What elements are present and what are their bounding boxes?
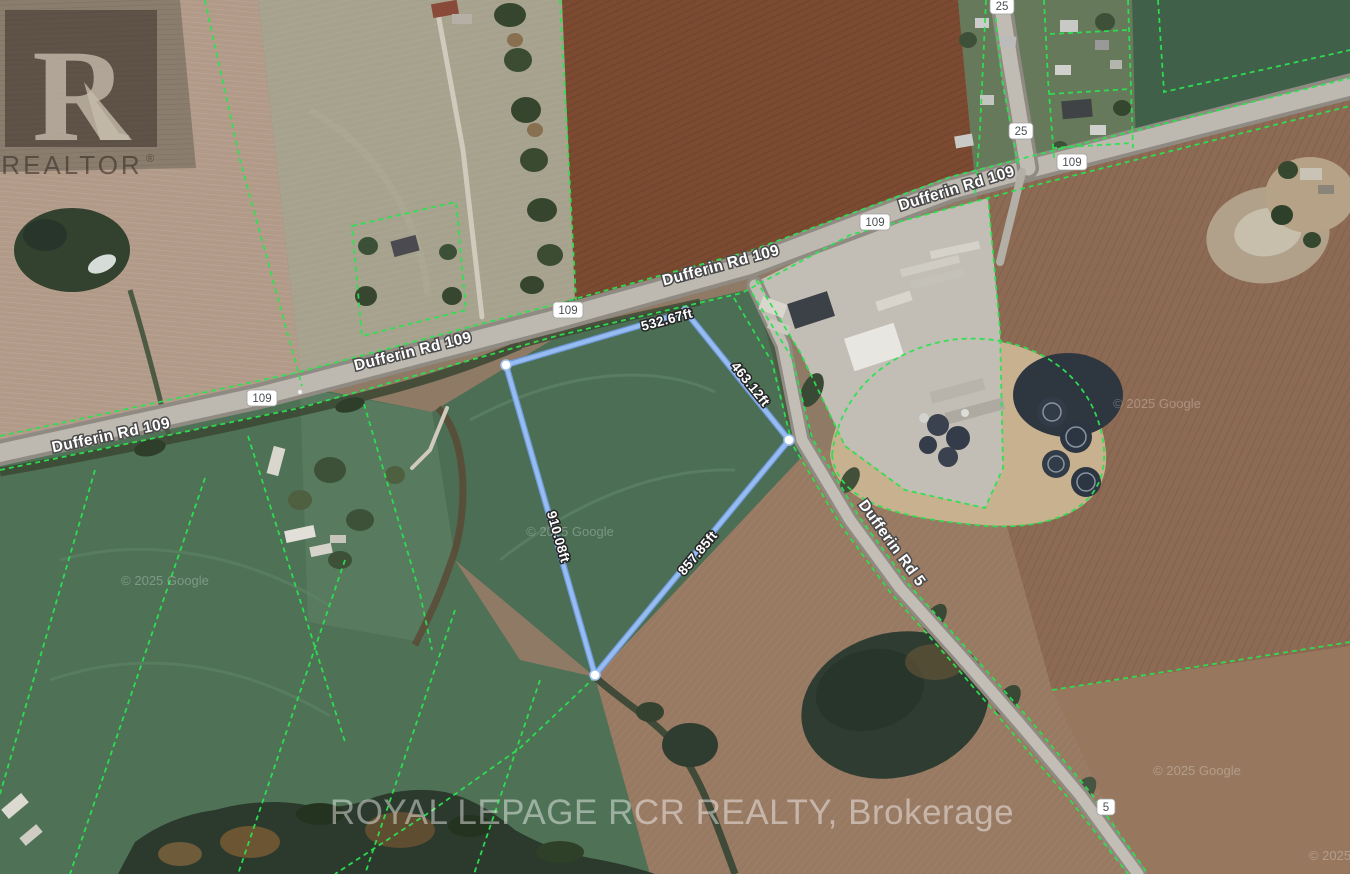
route-shield-109-a: 109 [247,390,277,406]
imagery-credit-4: © 2025 Google [1153,763,1241,778]
route-shield-109-c: 109 [860,214,890,230]
route-shield-109-d: 109 [1057,154,1087,170]
route-shield-109-b: 109 [553,302,583,318]
route-shield-25-mid: 25 [1009,123,1033,139]
parcel-vertex-east [784,435,794,445]
farm-shed-top [452,14,472,24]
realtor-logo-word: REALTOR [1,150,142,180]
brokerage-watermark: ROYAL LEPAGE RCR REALTY, Brokerage [330,793,1014,832]
route-shield-109-d-text: 109 [1062,157,1081,169]
route-shield-25-top-text: 25 [996,1,1009,13]
route-shield-109-b-text: 109 [558,305,577,317]
imagery-credit-partial: © 2025 [1309,848,1350,863]
imagery-credit-3: © 2025 Google [1113,396,1201,411]
vehicle-on-road [298,390,302,394]
realtor-registered-symbol: ® [146,153,154,165]
route-shield-5: 5 [1097,799,1115,815]
realtor-logo-letter: R [32,22,129,169]
route-shield-25-top: 25 [990,0,1014,14]
parcel-vertex-northwest [501,360,511,370]
satellite-map[interactable]: 532.67ft 463.12ft 910.08ft 857.85ft Duff… [0,0,1350,874]
imagery-credit-1: © 2025 Google [121,573,209,588]
route-shield-25-mid-text: 25 [1015,126,1028,138]
route-shield-5-text: 5 [1103,802,1109,814]
imagery-credit-2: © 2025 Google [526,524,614,539]
satellite-map-canvas[interactable]: 532.67ft 463.12ft 910.08ft 857.85ft Duff… [0,0,1350,874]
parcel-vertex-south [590,670,600,680]
route-shield-109-a-text: 109 [252,393,271,405]
realtor-logo-watermark: R REALTOR ® [1,10,157,180]
route-shield-109-c-text: 109 [865,217,884,229]
